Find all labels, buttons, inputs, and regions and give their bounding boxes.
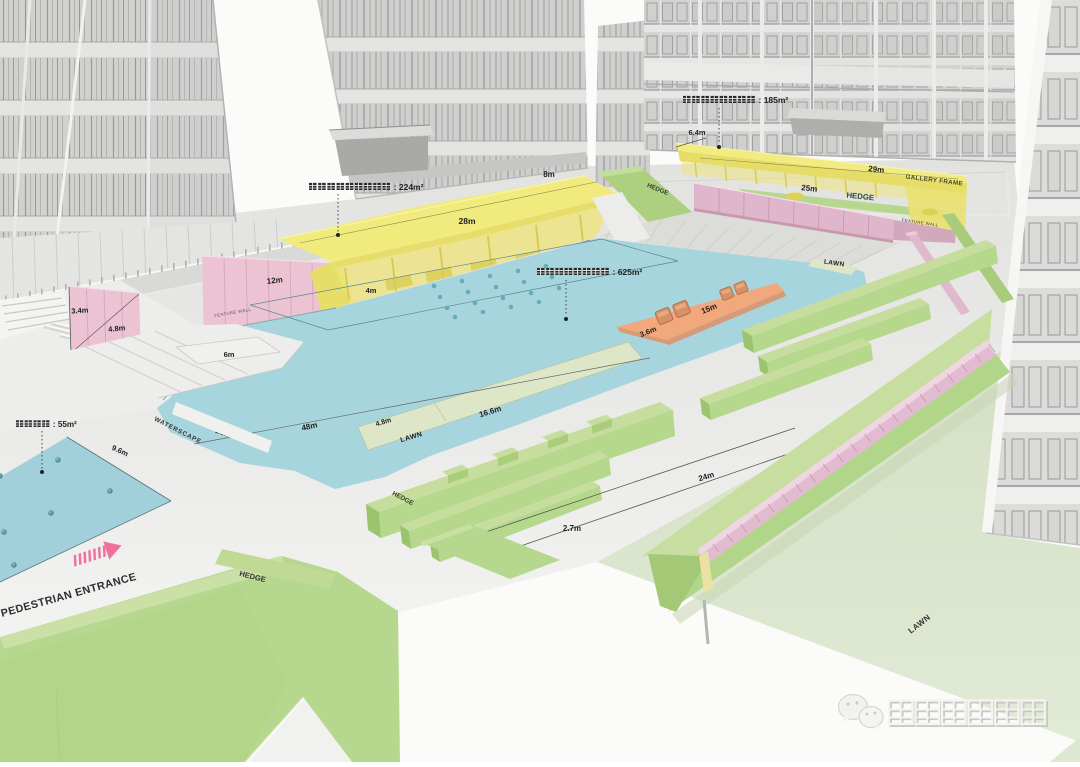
svg-text:: 625m²: : 625m²	[613, 267, 643, 277]
svg-text:28m: 28m	[458, 216, 475, 226]
svg-text:: 224m²: : 224m²	[394, 182, 424, 192]
svg-text:3.4m: 3.4m	[71, 305, 89, 315]
svg-text:4.8m: 4.8m	[108, 323, 126, 334]
svg-text:: 55m²: : 55m²	[53, 420, 77, 429]
svg-text:6m: 6m	[224, 350, 235, 359]
svg-text:12m: 12m	[266, 275, 283, 286]
svg-text:25m: 25m	[801, 183, 818, 194]
svg-text:2.7m: 2.7m	[563, 524, 581, 533]
svg-text:29m: 29m	[868, 164, 885, 175]
svg-text:8m: 8m	[543, 170, 555, 179]
svg-text:6.4m: 6.4m	[688, 128, 705, 137]
svg-text:: 185m²: : 185m²	[759, 95, 789, 105]
svg-text:4m: 4m	[366, 286, 377, 295]
